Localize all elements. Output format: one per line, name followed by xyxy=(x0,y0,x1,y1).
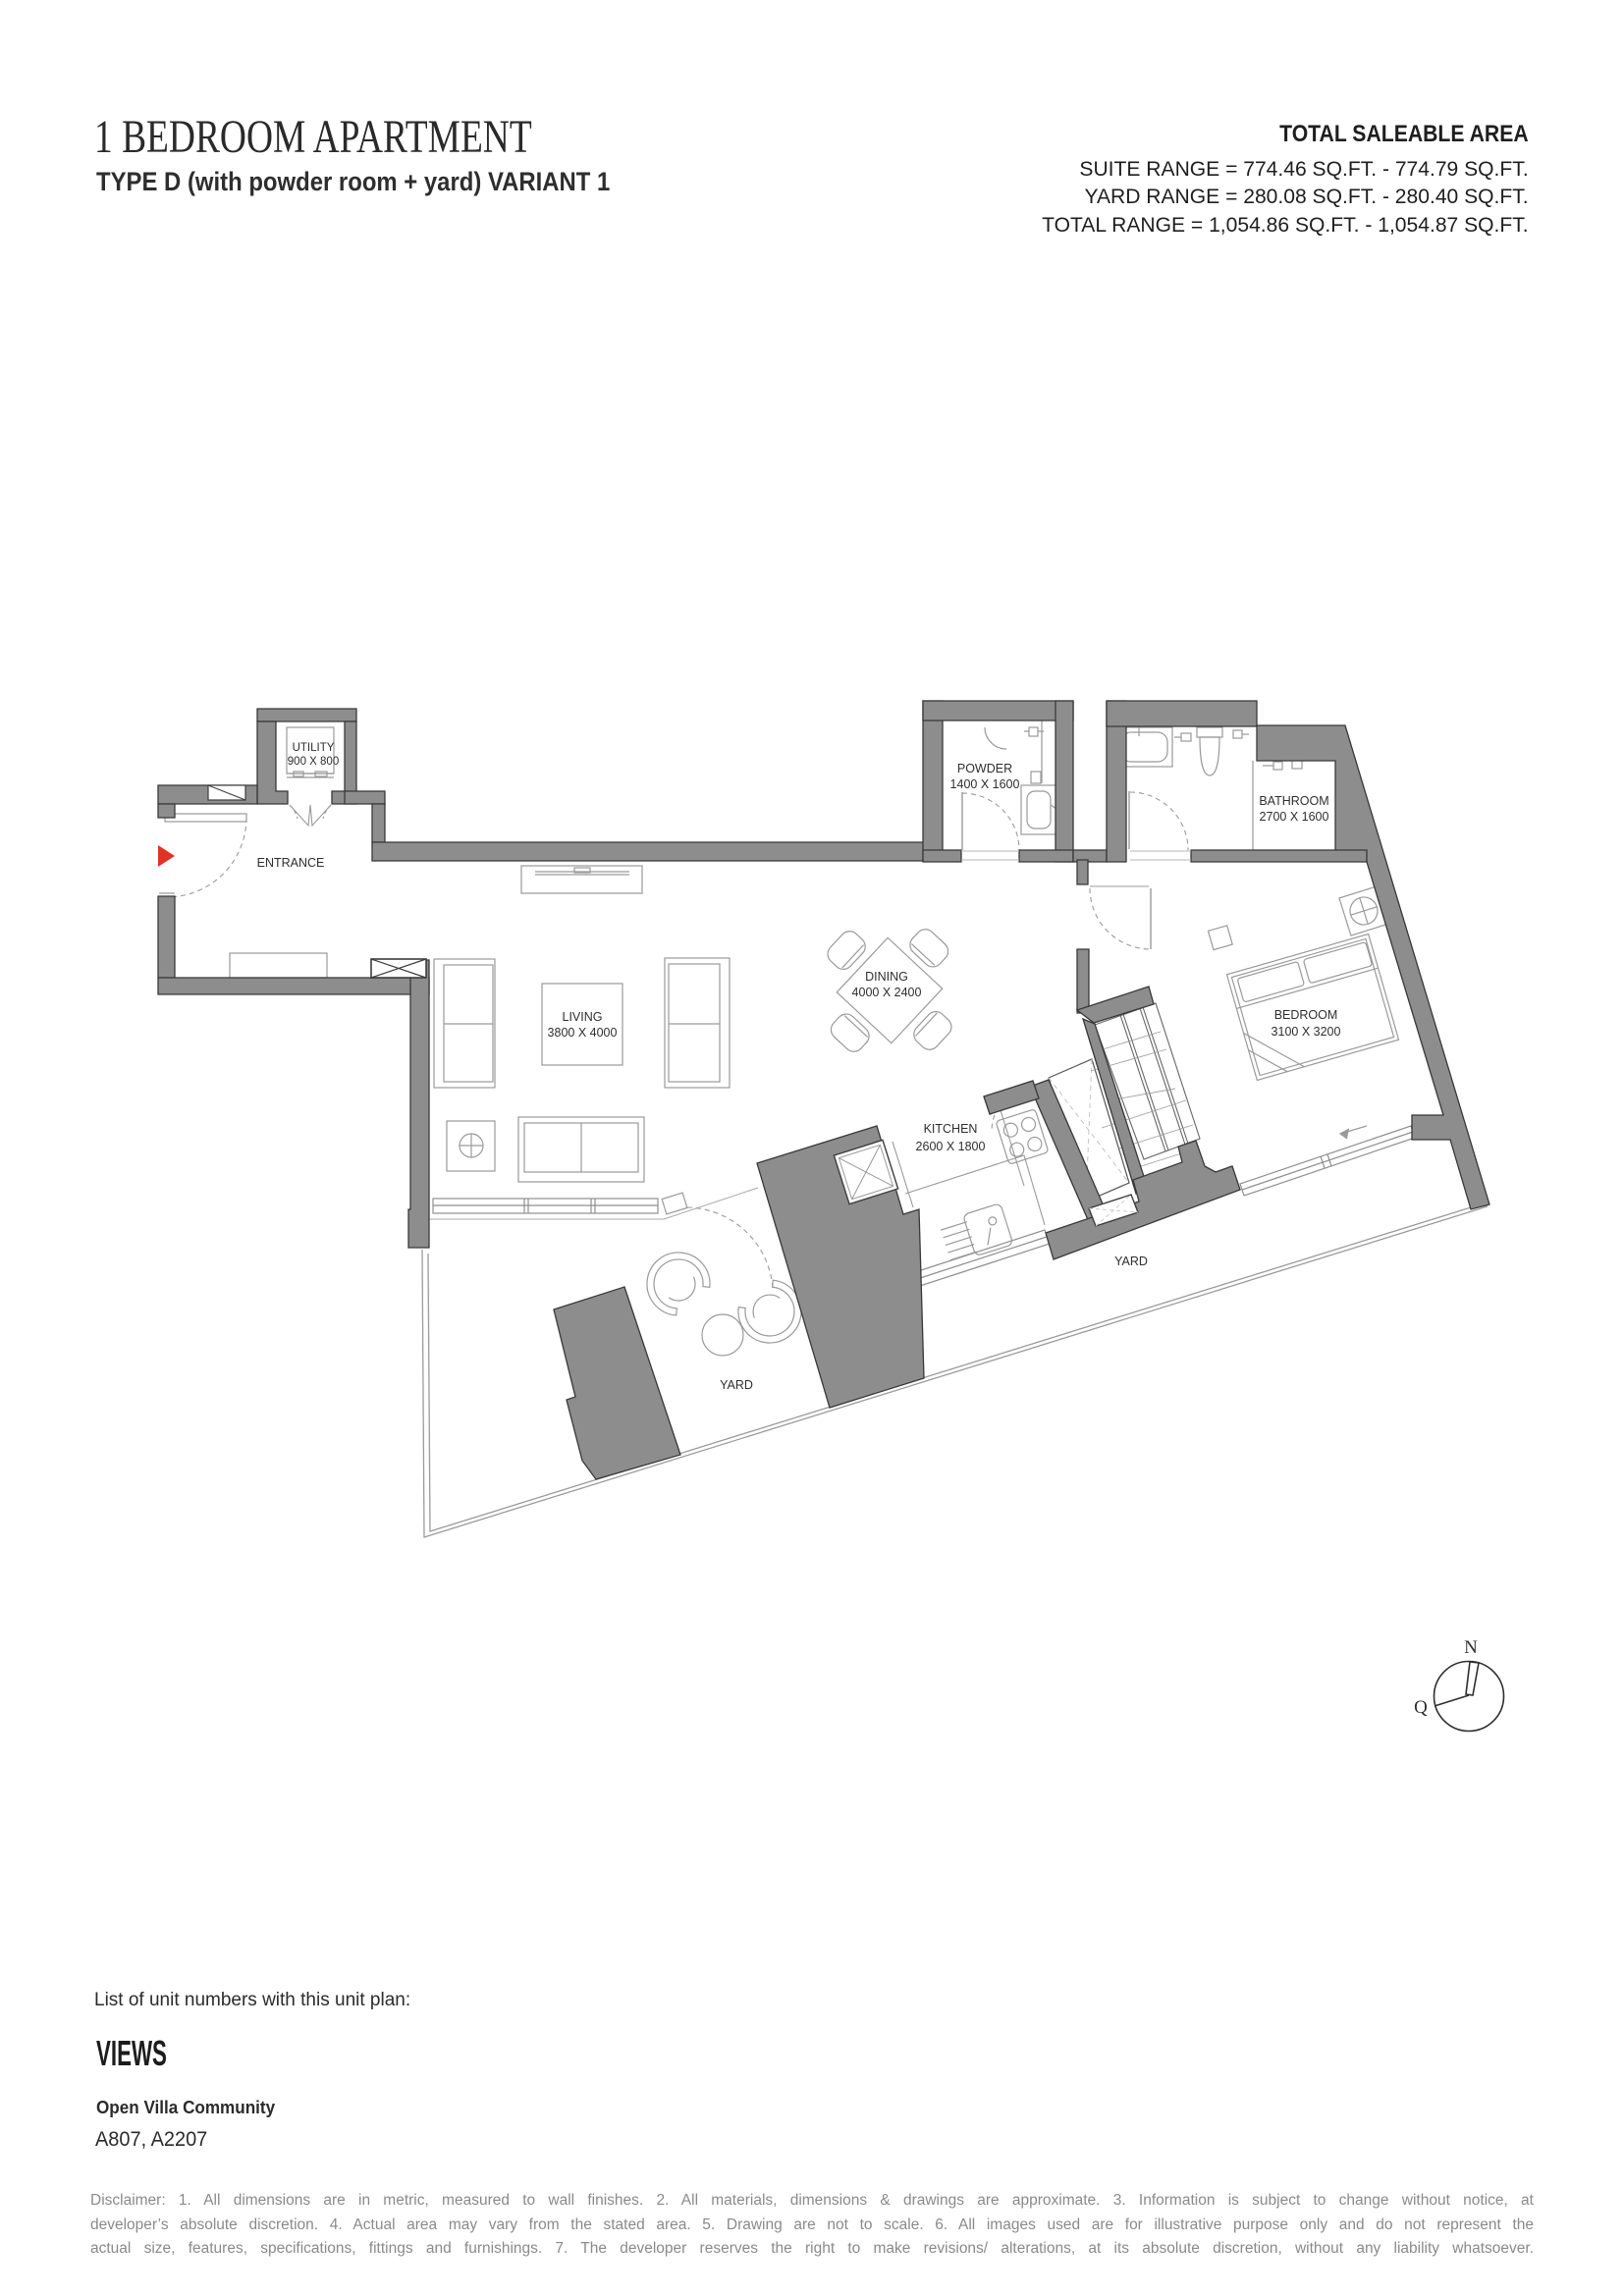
svg-text:BATHROOM: BATHROOM xyxy=(1259,794,1328,808)
svg-text:900 X 800: 900 X 800 xyxy=(288,756,339,768)
svg-text:4000 X 2400: 4000 X 2400 xyxy=(852,986,922,999)
svg-text:LIVING: LIVING xyxy=(563,1010,603,1024)
svg-text:3800 X 4000: 3800 X 4000 xyxy=(548,1026,618,1040)
svg-text:Q: Q xyxy=(1414,1697,1428,1718)
svg-text:2700 X 1600: 2700 X 1600 xyxy=(1260,810,1329,824)
svg-text:YARD: YARD xyxy=(1114,1255,1148,1268)
svg-text:3100 X 3200: 3100 X 3200 xyxy=(1272,1025,1341,1039)
svg-text:UTILITY: UTILITY xyxy=(293,742,335,754)
svg-text:N: N xyxy=(1464,1637,1478,1658)
svg-text:YARD: YARD xyxy=(720,1378,753,1392)
svg-text:DINING: DINING xyxy=(865,970,908,984)
svg-text:2600 X 1800: 2600 X 1800 xyxy=(916,1140,986,1153)
svg-text:1400 X 1600: 1400 X 1600 xyxy=(950,777,1020,791)
svg-text:ENTRANCE: ENTRANCE xyxy=(257,856,325,870)
svg-text:POWDER: POWDER xyxy=(957,762,1012,775)
svg-text:KITCHEN: KITCHEN xyxy=(924,1122,978,1136)
svg-text:BEDROOM: BEDROOM xyxy=(1274,1008,1338,1022)
